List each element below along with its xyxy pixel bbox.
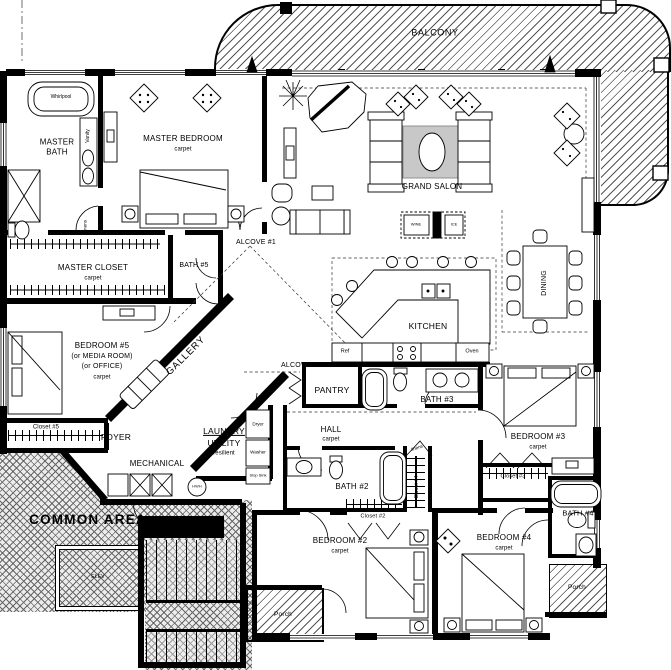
finish-label-hall: carpet (322, 436, 339, 443)
room-label-master-bedroom: MASTER BEDROOM (143, 134, 223, 144)
bedroom4-armchair (436, 529, 460, 553)
room-label-porch-left: Porch (274, 611, 292, 619)
room-label-bedroom3: BEDROOM #3 (511, 432, 565, 442)
salon-window-chairs (554, 103, 584, 166)
dining-cabinet (582, 178, 594, 232)
floorplan-linework (0, 0, 671, 670)
finish-label-master-bedroom: carpet (174, 146, 191, 153)
finish-label-bedroom3: carpet (529, 444, 546, 451)
bed4 (444, 554, 542, 632)
room-label-bedroom5-alt2: (or OFFICE) (82, 363, 123, 371)
salon-sofa-bottom (290, 210, 350, 234)
salon-tv-cabinet (284, 128, 296, 178)
master-bedroom-dresser (104, 112, 117, 162)
fixture-label-slop-sink: Slop Sink (249, 474, 267, 479)
bath2-fixtures (287, 452, 406, 504)
room-label-bedroom2: BEDROOM #2 (313, 536, 367, 546)
room-label-utility: UTILITY (207, 438, 240, 448)
salon-rug-and-table (403, 126, 461, 178)
room-label-closet5: Closet #5 (33, 424, 59, 431)
salon-coffee-table (312, 186, 333, 200)
room-label-closet3: Closet #3 (500, 474, 525, 481)
room-label-hall: HALL (321, 425, 342, 435)
room-label-common-area: COMMON AREA (29, 512, 147, 528)
room-label-laundry: LAUNDRY (203, 426, 245, 436)
room-label-kitchen: KITCHEN (409, 321, 448, 331)
finish-label-bedroom4: carpet (495, 545, 512, 552)
room-label-closet4: Closet #4 (414, 476, 420, 499)
bed5 (8, 332, 62, 414)
floor-plan: BALCONY MASTER BATH Whirlpool Vanity MAS… (0, 0, 671, 670)
room-label-foyer: FOYER (101, 432, 131, 442)
room-label-elevator: ELEV (91, 574, 105, 580)
finish-label-bedroom2: carpet (331, 548, 348, 555)
fixture-label-ref: Ref (341, 349, 350, 356)
fixture-label-linens-master: linens (82, 220, 88, 232)
room-label-bath5: BATH #5 (179, 262, 208, 270)
room-label-grand-salon: GRAND SALON (402, 182, 462, 192)
room-label-bedroom5-alt1: (or MEDIA ROOM) (71, 353, 132, 361)
room-label-mechanical: MECHANICAL (130, 459, 184, 469)
salon-armchair-pairs (386, 85, 481, 116)
room-label-porch-right: Porch (568, 584, 586, 592)
fixture-label-wine: WINE (411, 223, 421, 228)
fixture-label-vanity: Vanity (85, 129, 91, 143)
room-label-balcony: BALCONY (411, 28, 458, 39)
salon-sofa-left (368, 112, 404, 192)
room-label-master-bath: MASTER BATH (33, 137, 81, 156)
fixture-label-washer: Washer (250, 449, 266, 455)
bed3 (486, 364, 594, 426)
room-label-bath2: BATH #2 (335, 482, 368, 492)
fixture-label-dryer: Dryer (252, 421, 263, 427)
room-label-master-closet: MASTER CLOSET (58, 263, 128, 273)
room-label-bath3: BATH #3 (420, 395, 453, 405)
master-bed (122, 170, 244, 228)
room-label-bedroom4: BEDROOM #4 (477, 533, 531, 543)
fixture-label-whirlpool: Whirlpool (51, 94, 72, 100)
salon-sofa-right (456, 112, 492, 192)
fixture-label-hwh: HWH (192, 485, 202, 490)
room-label-pantry: PANTRY (315, 385, 350, 395)
master-bedroom-chairs (130, 84, 221, 112)
bedroom5-sofa (119, 359, 170, 410)
room-label-alcove1: ALCOVE #1 (236, 239, 276, 247)
finish-label-master-closet: carpet (84, 275, 101, 282)
room-label-closet2: Closet #2 (360, 514, 385, 521)
room-label-bedroom5: BEDROOM #5 (75, 341, 129, 351)
room-label-bath4: BATH #4 (562, 509, 593, 518)
bed2 (366, 530, 428, 633)
toilet-master (8, 221, 29, 239)
room-label-dining: DINING (541, 270, 549, 296)
bath4-fixtures (551, 481, 601, 556)
finish-label-laundry: resilient (213, 450, 235, 457)
fixture-label-oven: Oven (465, 349, 478, 356)
grand-piano (308, 82, 366, 132)
shower (8, 170, 40, 222)
bedroom3-dresser (552, 458, 594, 474)
room-label-alcove2: ALCOVE #2 (281, 362, 321, 370)
salon-armchair-bottom (272, 184, 292, 225)
potted-plant (279, 80, 307, 110)
bedroom5-console (103, 306, 155, 320)
finish-label-bedroom5: carpet (93, 374, 110, 381)
fixture-label-ice: ICE (451, 223, 458, 228)
